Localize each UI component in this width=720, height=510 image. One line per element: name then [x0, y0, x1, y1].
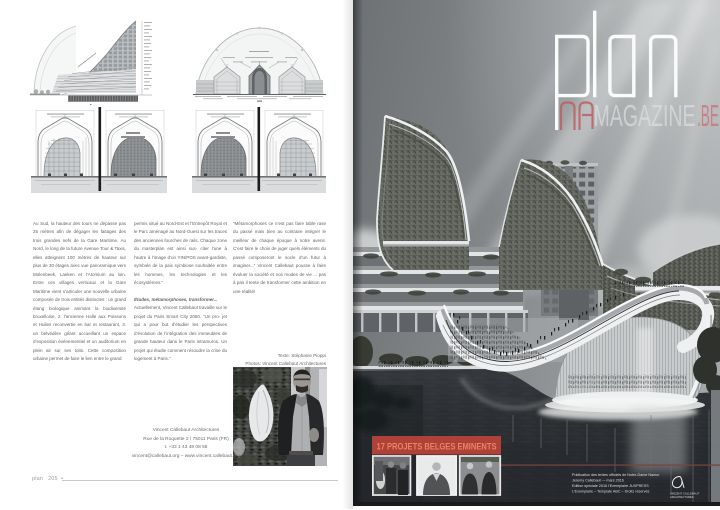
- svg-text:L’Exemplaire – Template ABC –: L’Exemplaire – Template ABC – Droits rés…: [572, 490, 650, 494]
- svg-text:Jeremy Callebaut — mars 2016: Jeremy Callebaut — mars 2016: [572, 479, 624, 483]
- svg-text:Publication des textes officie: Publication des textes officiels de Notr…: [572, 473, 660, 477]
- svg-text:17 PROJETS BELGES EMINENTS: 17 PROJETS BELGES EMINENTS: [377, 441, 497, 451]
- svg-text:MAGAZINE: MAGAZINE: [594, 98, 696, 133]
- svg-text:ARCHITECTURES: ARCHITECTURES: [670, 495, 694, 499]
- svg-text:Edition spéciale 2016 l’Exempl: Edition spéciale 2016 l’Exemplaire JUXPR…: [572, 484, 649, 488]
- svg-text:.BE: .BE: [697, 98, 719, 133]
